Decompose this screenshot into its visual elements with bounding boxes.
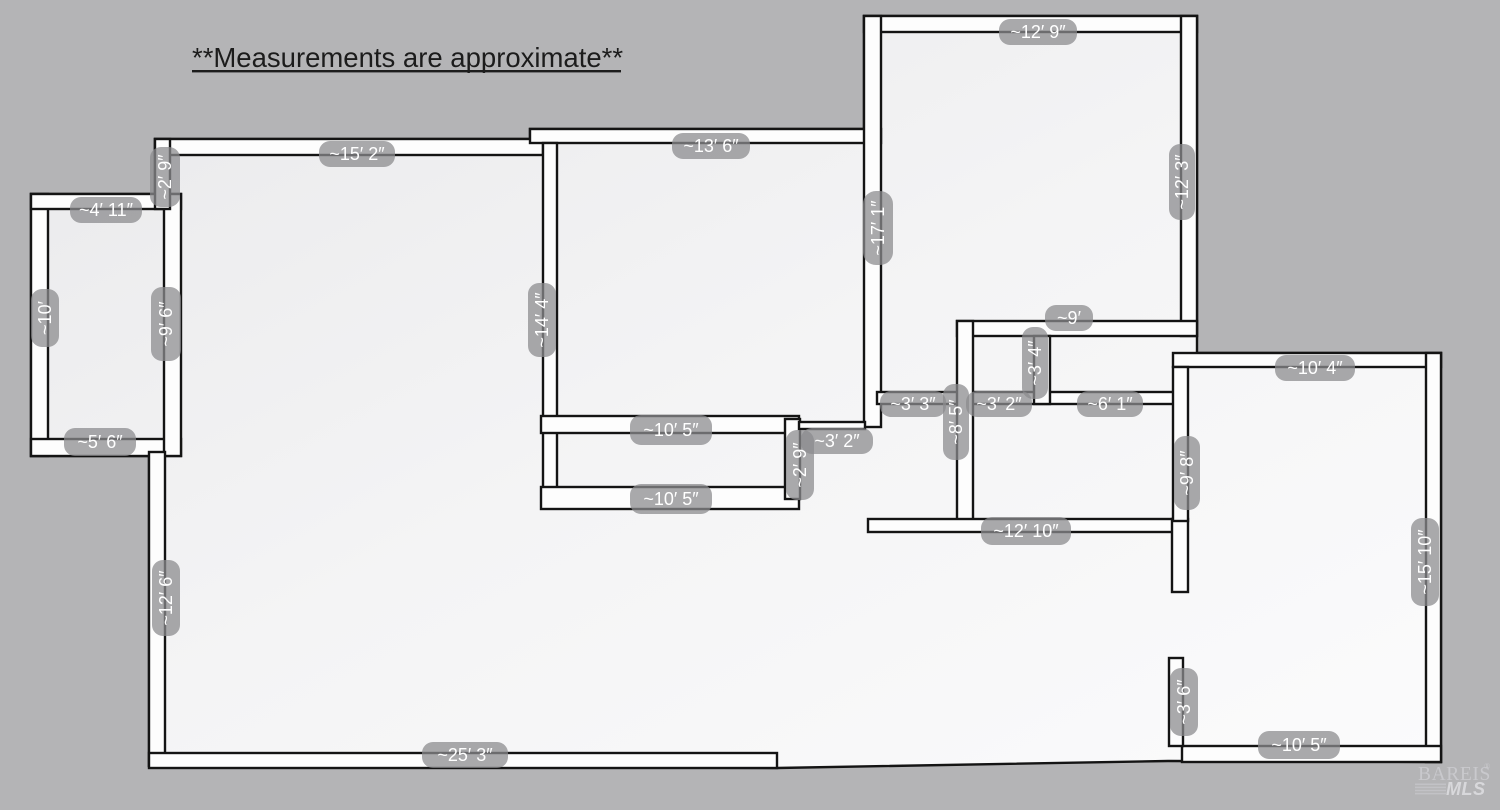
svg-text:~12′ 10″: ~12′ 10″: [993, 521, 1059, 541]
svg-text:~2′ 9″: ~2′ 9″: [790, 442, 810, 488]
svg-text:~15′ 2″: ~15′ 2″: [329, 144, 385, 164]
svg-text:~17′ 1″: ~17′ 1″: [868, 200, 888, 256]
svg-text:~4′ 11″: ~4′ 11″: [79, 200, 134, 220]
svg-text:**Measurements are approximate: **Measurements are approximate**: [192, 42, 623, 73]
svg-text:~12′ 9″: ~12′ 9″: [1010, 22, 1066, 42]
svg-text:~10′ 4″: ~10′ 4″: [1287, 358, 1343, 378]
svg-text:~12′ 3″: ~12′ 3″: [1172, 154, 1192, 210]
svg-text:~10′ 5″: ~10′ 5″: [643, 420, 699, 440]
svg-text:~3′ 2″: ~3′ 2″: [814, 431, 860, 451]
svg-text:~3′ 4″: ~3′ 4″: [1025, 340, 1045, 386]
svg-text:~3′ 2″: ~3′ 2″: [976, 394, 1022, 414]
svg-text:~9′ 8″: ~9′ 8″: [1177, 450, 1197, 496]
svg-text:~10′ 5″: ~10′ 5″: [1271, 735, 1327, 755]
svg-text:~6′ 1″: ~6′ 1″: [1087, 394, 1133, 414]
svg-text:~12′ 6″: ~12′ 6″: [156, 570, 176, 626]
svg-text:~15′ 10″: ~15′ 10″: [1415, 529, 1435, 595]
svg-text:~5′ 6″: ~5′ 6″: [77, 432, 123, 452]
svg-text:~3′ 6″: ~3′ 6″: [1174, 679, 1194, 725]
svg-text:~3′ 3″: ~3′ 3″: [890, 394, 936, 414]
svg-text:~14′ 4″: ~14′ 4″: [532, 292, 552, 348]
svg-text:MLS: MLS: [1446, 779, 1486, 799]
svg-text:~9′ 6″: ~9′ 6″: [156, 301, 176, 347]
svg-text:~9′: ~9′: [1057, 308, 1082, 328]
svg-text:~10′ 5″: ~10′ 5″: [643, 489, 699, 509]
svg-text:~8′ 5″: ~8′ 5″: [946, 399, 966, 445]
svg-text:~10′: ~10′: [35, 300, 55, 335]
svg-text:®: ®: [1484, 762, 1490, 771]
svg-text:~13′ 6″: ~13′ 6″: [683, 136, 739, 156]
svg-text:~2′ 9″: ~2′ 9″: [155, 154, 175, 200]
svg-text:~25′ 3″: ~25′ 3″: [437, 745, 493, 765]
